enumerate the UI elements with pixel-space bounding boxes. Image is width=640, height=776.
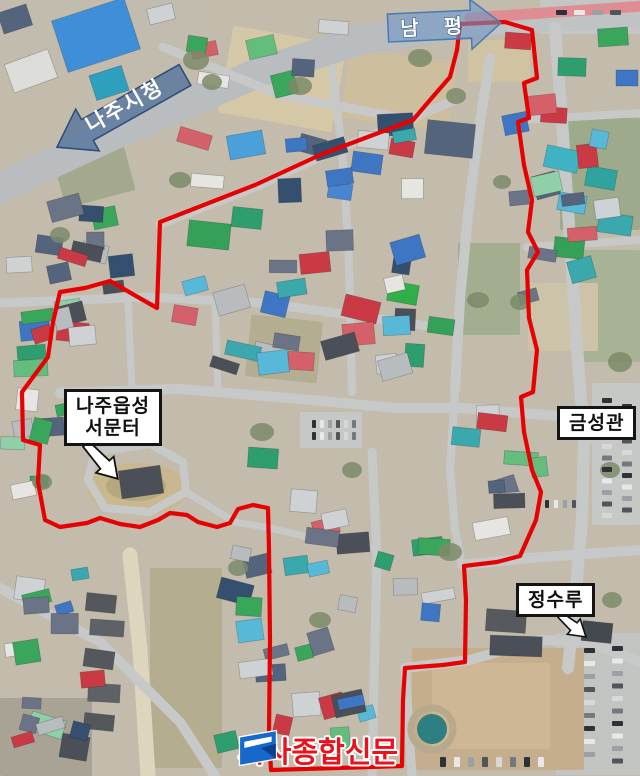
map-screenshot: 나주시청 남 평 나주읍성 서문터 금성관 정수루 시사종합신문	[0, 0, 640, 776]
geumseonggwan-label: 금성관	[557, 406, 636, 440]
seomunteo-label-line2: 서문터	[76, 417, 150, 439]
nampyeong-arrow-label: 남 평	[400, 13, 472, 40]
watermark: 시사종합신문	[238, 729, 398, 771]
seomunteo-label: 나주읍성 서문터	[64, 389, 162, 446]
jeongsuru-label: 정수루	[516, 583, 595, 617]
seomunteo-label-line1: 나주읍성	[76, 395, 150, 417]
satellite-map-image: 나주시청 남 평	[0, 0, 640, 776]
newspaper-logo-icon	[238, 729, 280, 767]
